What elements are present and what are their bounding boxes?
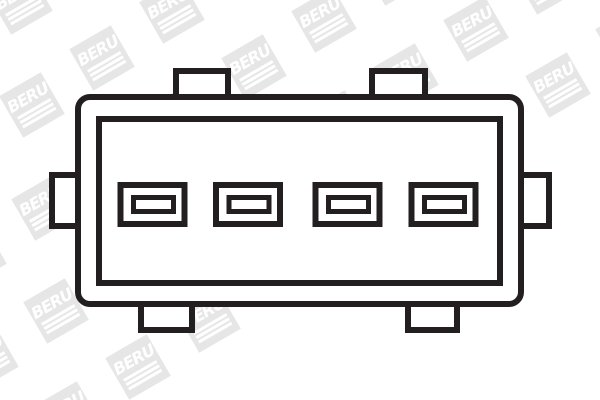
connector-drawing [0,0,600,400]
connector-body-outline [78,97,521,304]
technical-drawing-canvas: BERUBERUBERUBERUBERUBERUBERUBERUBERUBERU… [0,0,600,400]
